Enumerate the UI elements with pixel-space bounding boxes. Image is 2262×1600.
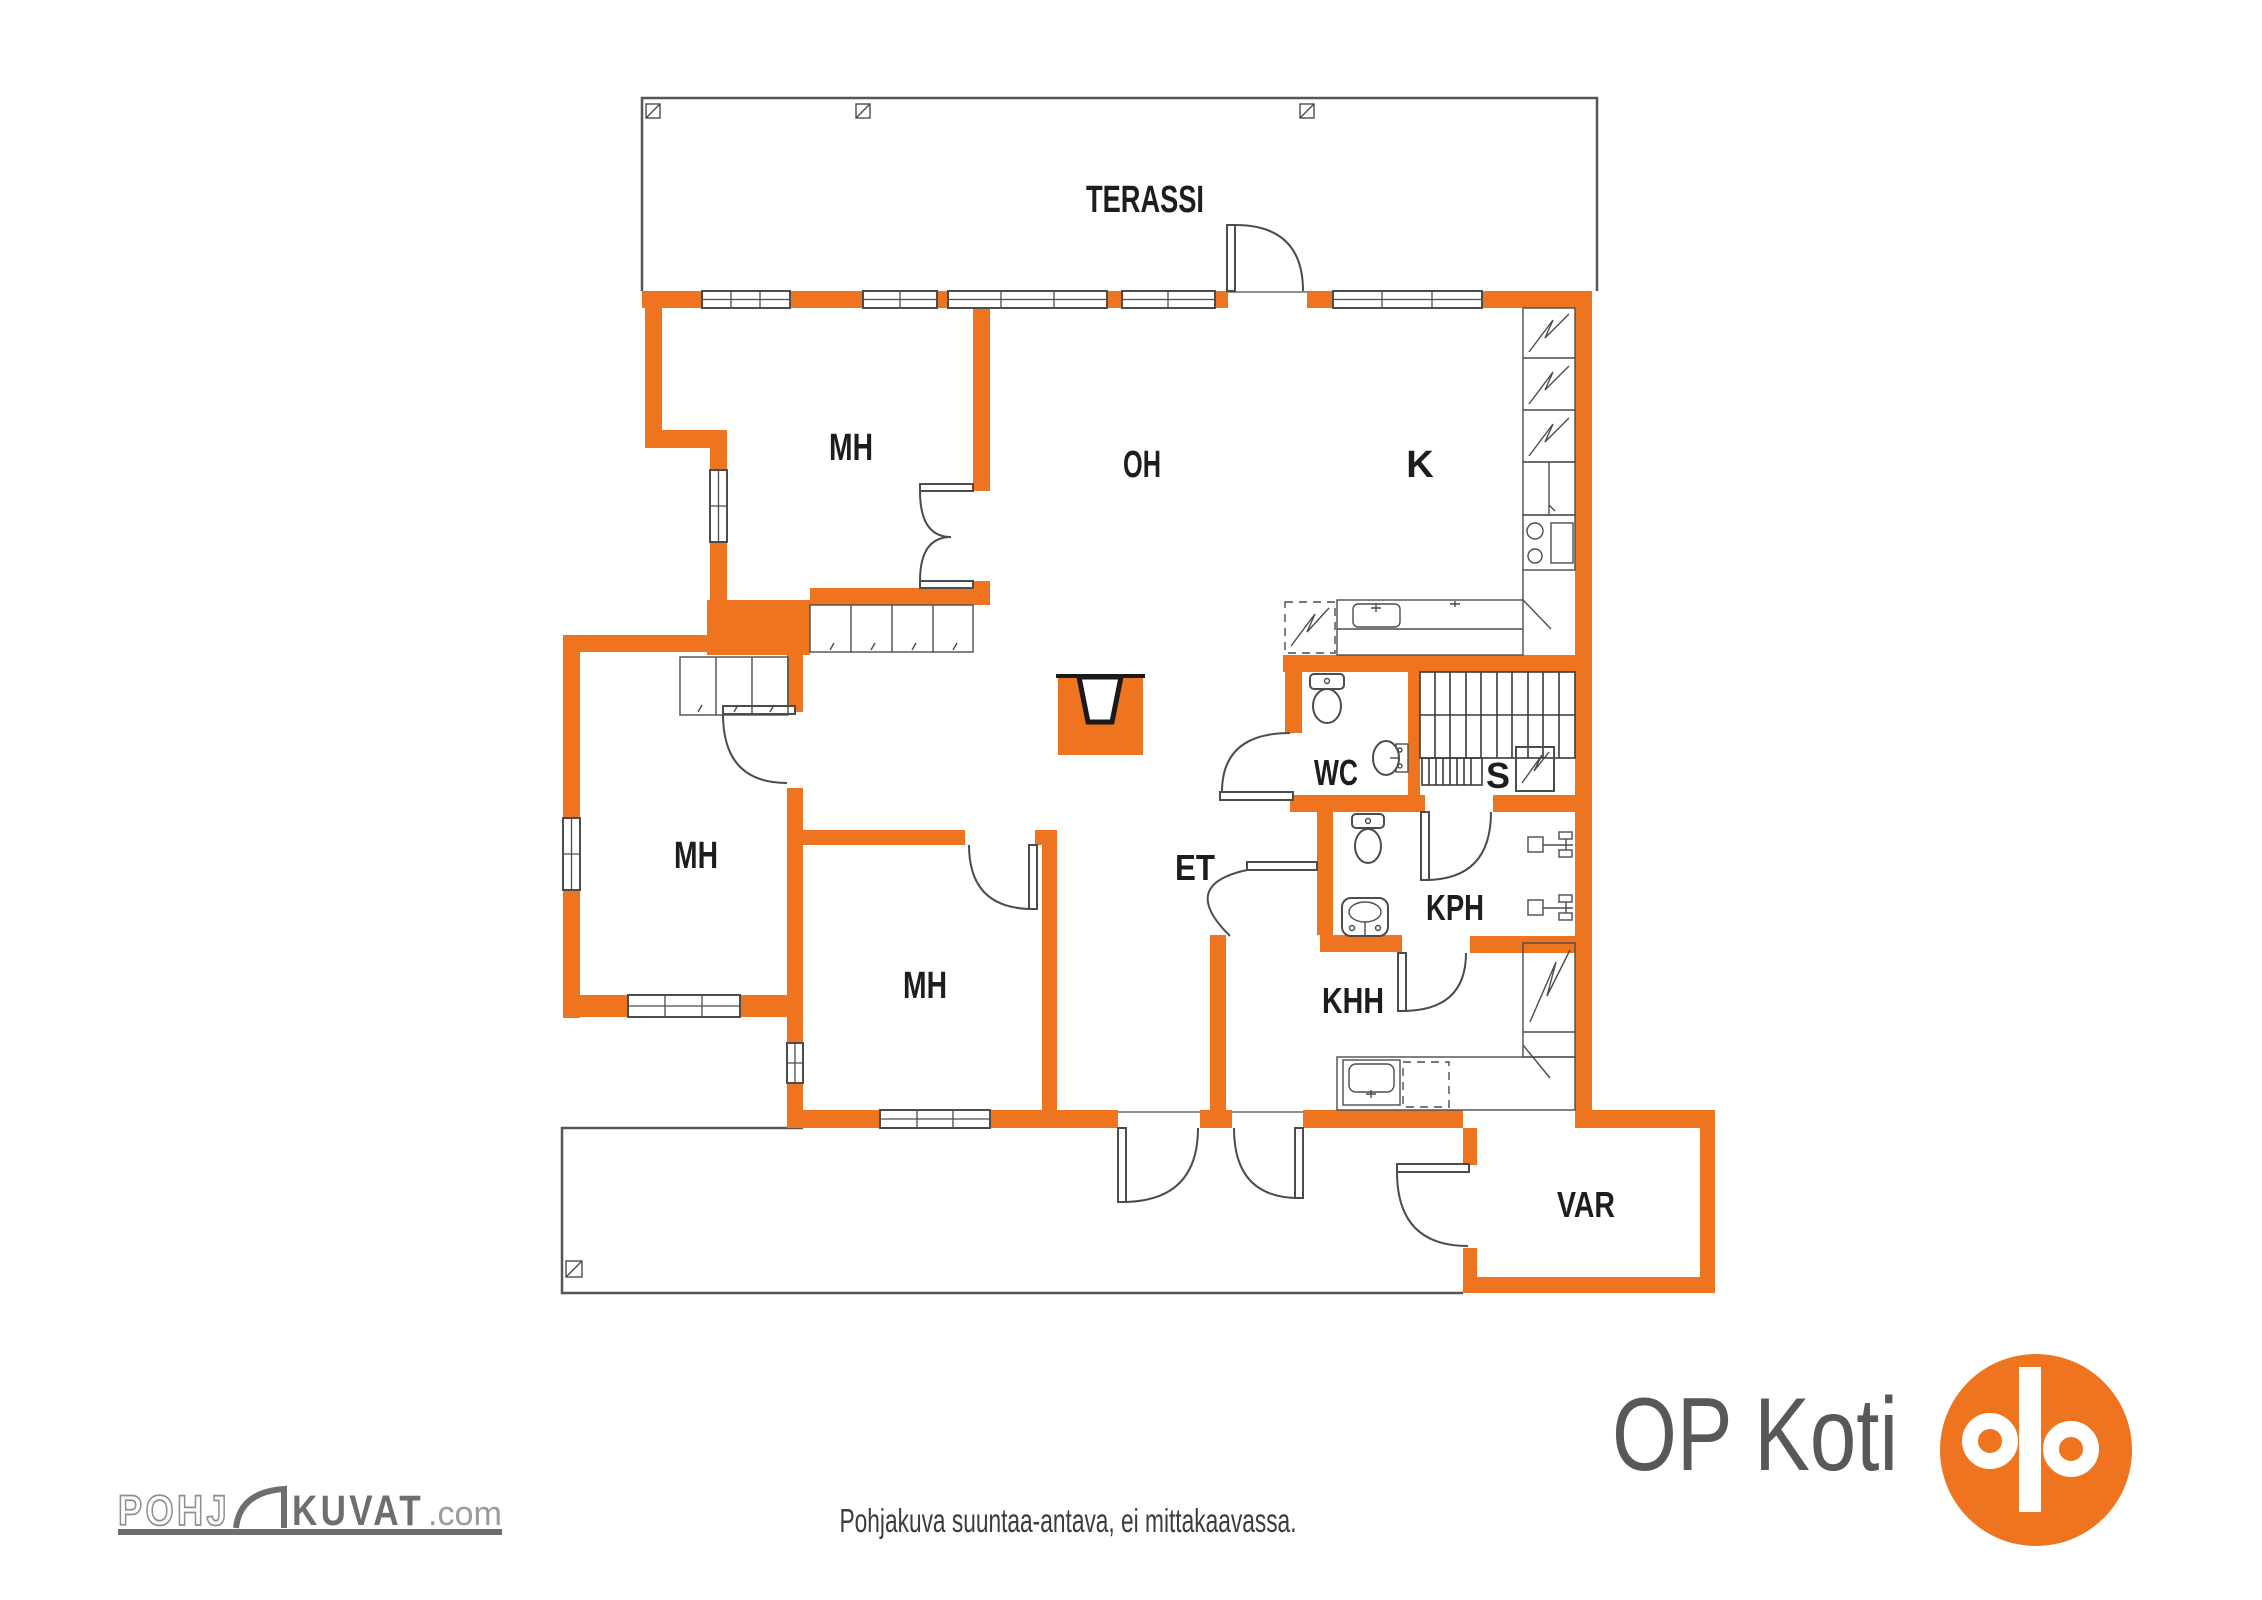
stove-icon bbox=[1523, 515, 1575, 570]
room-label-var: VAR bbox=[1557, 1184, 1615, 1225]
window bbox=[880, 1110, 990, 1128]
toilet-icon bbox=[1352, 814, 1384, 863]
sink-icon bbox=[1343, 1060, 1400, 1105]
door-arc bbox=[1220, 733, 1293, 800]
door-arc bbox=[1227, 225, 1307, 292]
khh-fixtures bbox=[1337, 943, 1575, 1110]
door-arc bbox=[1421, 812, 1491, 880]
pohjakuvat-logo-suffix: .com bbox=[428, 1495, 502, 1533]
door-arc bbox=[1397, 1164, 1469, 1246]
sauna-stove-icon bbox=[1516, 747, 1554, 791]
room-label-kph: KPH bbox=[1426, 887, 1484, 928]
pohjakuvat-logo-underline bbox=[118, 1529, 502, 1535]
door-arc bbox=[1398, 953, 1466, 1011]
opkoti-logo: OP Koti bbox=[1612, 1354, 2132, 1546]
sink-icon bbox=[1342, 898, 1388, 936]
window bbox=[563, 818, 580, 890]
drying-cabinet-icon bbox=[1523, 943, 1575, 1078]
window bbox=[863, 291, 937, 308]
window bbox=[628, 995, 740, 1017]
terrace-post-icon bbox=[1300, 104, 1314, 118]
disclaimer-text: Pohjakuva suuntaa-antava, ei mittakaavas… bbox=[840, 1502, 1297, 1539]
door-arc bbox=[1208, 862, 1317, 936]
counter-corner bbox=[1523, 570, 1551, 629]
door-glyph-icon bbox=[236, 1489, 284, 1528]
window bbox=[948, 291, 1107, 308]
pohjakuvat-logo-part1: POHJ bbox=[118, 1487, 230, 1535]
room-label-mh-mid: MH bbox=[903, 965, 947, 1007]
washer-icon bbox=[1403, 1062, 1449, 1107]
terrace-post-icon bbox=[856, 104, 870, 118]
door-arc bbox=[1118, 1112, 1200, 1202]
window bbox=[1333, 291, 1482, 308]
door-arc bbox=[920, 484, 973, 588]
room-label-oh: OH bbox=[1123, 444, 1161, 486]
room-label-et: ET bbox=[1175, 847, 1215, 888]
room-label-terassi: TERASSI bbox=[1086, 179, 1204, 221]
room-label-k: K bbox=[1406, 444, 1434, 486]
fridge-freezer-icon bbox=[1523, 308, 1575, 462]
kitchen-counter bbox=[1337, 600, 1523, 655]
oven-icon bbox=[1551, 523, 1573, 563]
pohjakuvat-logo: POHJ KUVAT .com bbox=[118, 1487, 502, 1535]
terrace-post-icon bbox=[566, 1261, 582, 1277]
shower-mixer-icon bbox=[1528, 832, 1573, 857]
shower-mixer-icon bbox=[1528, 895, 1573, 920]
room-label-khh: KHH bbox=[1322, 980, 1384, 1021]
opkoti-logo-text: OP Koti bbox=[1612, 1377, 1898, 1493]
fireplace-icon bbox=[1056, 676, 1145, 755]
room-label-mh-upper: MH bbox=[829, 427, 873, 469]
window bbox=[702, 291, 790, 308]
room-label-mh-left: MH bbox=[674, 835, 718, 877]
sink-icon bbox=[1373, 741, 1408, 775]
window bbox=[787, 1043, 803, 1083]
floorplan-drawing: TERASSI MH OH K MH MH WC S ET KPH KHH VA… bbox=[0, 0, 2262, 1600]
cabinet bbox=[1523, 462, 1575, 515]
room-label-wc: WC bbox=[1314, 752, 1358, 793]
floorplan-page: TERASSI MH OH K MH MH WC S ET KPH KHH VA… bbox=[0, 0, 2262, 1600]
window bbox=[1122, 291, 1215, 308]
dishwasher-icon bbox=[1285, 602, 1335, 653]
wardrobe bbox=[810, 605, 973, 652]
toilet-icon bbox=[1310, 674, 1344, 723]
door-arc bbox=[1232, 1112, 1303, 1198]
room-label-s: S bbox=[1486, 755, 1510, 796]
op-logo-icon bbox=[1940, 1354, 2132, 1546]
pohjakuvat-logo-part2: KUVAT bbox=[292, 1487, 424, 1535]
window bbox=[710, 470, 727, 542]
door-arc bbox=[969, 845, 1037, 909]
terrace-post-icon bbox=[646, 104, 660, 118]
door-arc bbox=[723, 706, 795, 783]
sink-icon bbox=[1353, 603, 1400, 627]
entry-porch-outline bbox=[562, 1128, 1463, 1293]
